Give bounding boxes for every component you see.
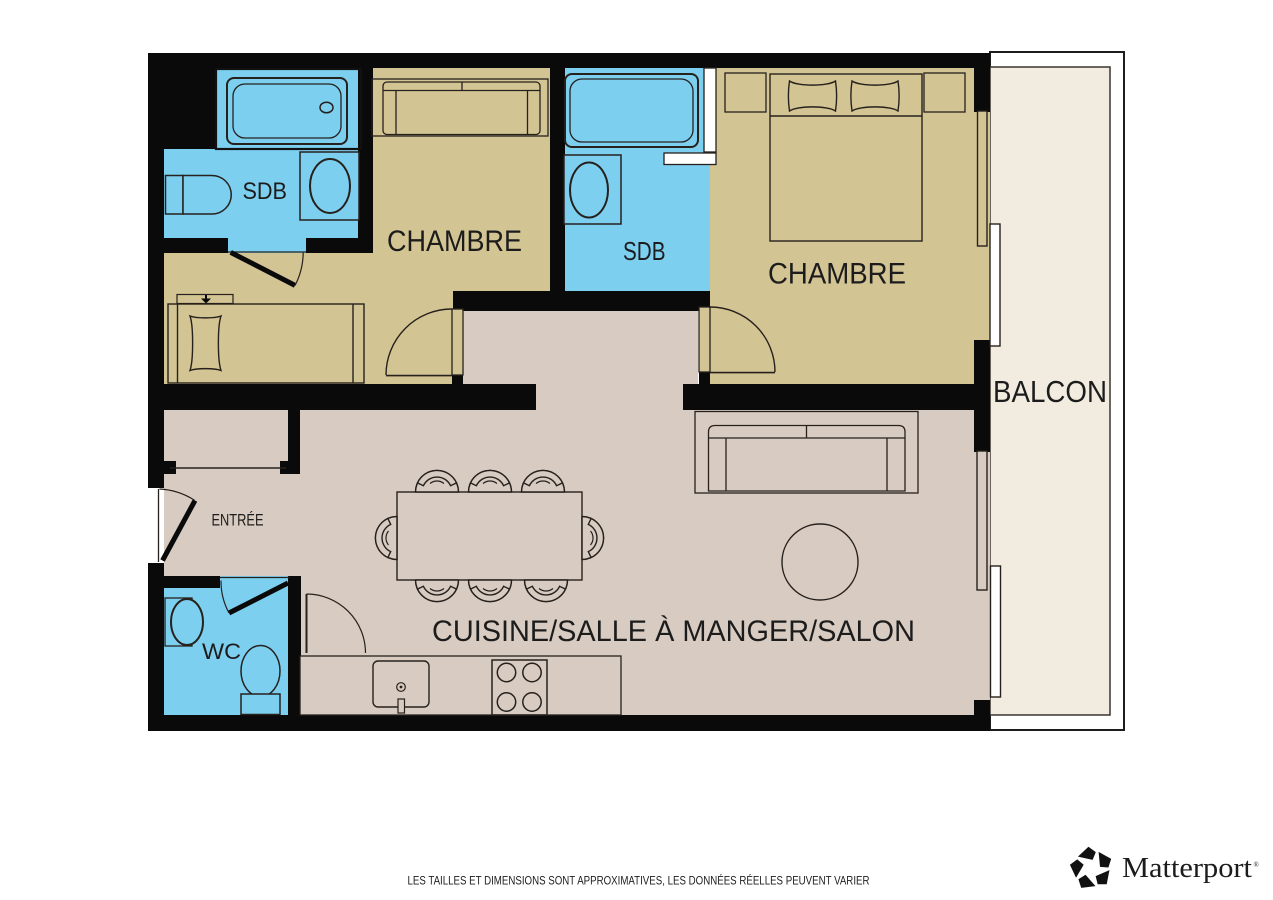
svg-text:BALCON: BALCON [993,374,1107,409]
svg-text:Matterport: Matterport [1122,853,1252,884]
svg-text:CHAMBRE: CHAMBRE [768,258,906,291]
svg-text:®: ® [1254,861,1260,869]
svg-text:LES TAILLES ET DIMENSIONS SONT: LES TAILLES ET DIMENSIONS SONT APPROXIMA… [408,873,870,888]
svg-text:CHAMBRE: CHAMBRE [387,225,522,258]
svg-text:CUISINE/SALLE À MANGER/SALON: CUISINE/SALLE À MANGER/SALON [432,615,915,648]
svg-text:SDB: SDB [623,236,666,266]
svg-text:ENTRÉE: ENTRÉE [212,511,264,530]
svg-text:SDB: SDB [243,178,288,205]
svg-text:WC: WC [202,639,241,664]
